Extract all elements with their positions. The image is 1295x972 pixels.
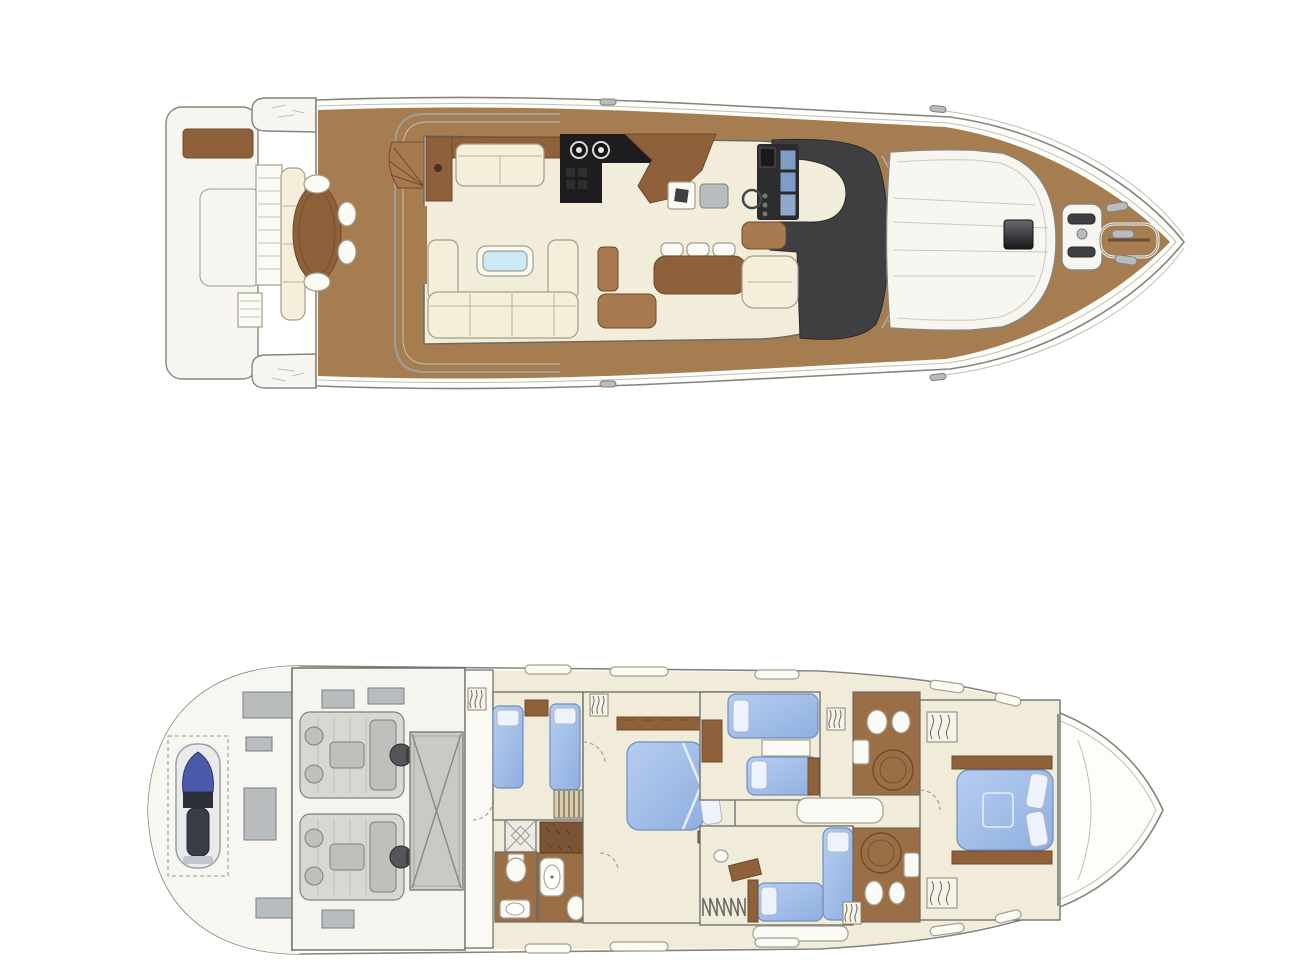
- dash-knob: [763, 203, 768, 208]
- guest-pillow: [733, 700, 749, 732]
- master-bed: [627, 742, 703, 830]
- dinette-chair: [713, 243, 735, 256]
- bow-cleat-dark: [1068, 247, 1095, 257]
- anchor-track: [1100, 224, 1158, 257]
- vip-wardrobe: [927, 712, 957, 742]
- vip-cabin: [920, 700, 1060, 920]
- engine-room-box: [322, 690, 354, 708]
- swim-platform: [166, 107, 262, 379]
- tender-garage: [148, 666, 305, 954]
- passerelle: [238, 293, 262, 327]
- dinette-bench-aft: [598, 294, 656, 328]
- guest-cabin-aft: [700, 826, 853, 941]
- coffee-table: [477, 246, 533, 276]
- fuel-tank: [410, 732, 463, 890]
- toilet: [567, 896, 585, 920]
- jet-ski: [176, 744, 220, 868]
- starboard-engine: [300, 814, 416, 900]
- corridor-sideboard: [797, 798, 883, 823]
- vip-wardrobe: [927, 878, 957, 908]
- guest-side-cabinet: [808, 758, 819, 795]
- master-wardrobe: [540, 822, 583, 853]
- sink: [506, 903, 524, 915]
- salon-door-opening: [420, 206, 427, 284]
- lower-corridor: [465, 670, 493, 948]
- salon-sofa-forward: [456, 144, 544, 186]
- stern-sponson-port: [252, 98, 316, 132]
- stern-sponson-starboard: [252, 354, 316, 388]
- galley-sink: [668, 182, 695, 209]
- engine-room-box: [368, 688, 404, 704]
- master-wardrobe-icon: [590, 694, 608, 716]
- round-shower: [861, 833, 901, 873]
- wardrobe-icon: [843, 902, 861, 924]
- nav-screen: [780, 194, 796, 216]
- guest-cabin-forward: [700, 692, 820, 800]
- dinette-chair: [661, 243, 683, 256]
- guest-nightstand: [702, 720, 722, 762]
- nav-screen: [780, 150, 796, 170]
- port-engine: [300, 712, 416, 798]
- dash-knob: [763, 194, 768, 199]
- lower-deck-plan: [148, 665, 1163, 954]
- bow-cleat-dark: [1068, 214, 1095, 224]
- nav-screen: [780, 172, 796, 192]
- guest-pillow: [751, 761, 767, 789]
- foredeck-sunpad: [887, 150, 1057, 331]
- port-head: [495, 852, 537, 922]
- vanity: [853, 740, 869, 764]
- windlass-capstan: [1077, 229, 1087, 239]
- starboard-head-aft: [843, 828, 920, 924]
- twin-bed-pillow: [554, 708, 576, 724]
- bidet: [889, 882, 905, 904]
- vanity: [904, 853, 919, 877]
- toilet: [506, 858, 526, 882]
- dinette-table: [654, 256, 746, 294]
- companionway-stairs: [554, 790, 586, 818]
- engine-room-box: [322, 910, 354, 928]
- dash-knob: [763, 212, 768, 217]
- guest-shelf: [762, 740, 810, 756]
- toilet: [865, 881, 883, 905]
- wardrobe-icon: [827, 708, 845, 730]
- dinette-bench-side: [598, 247, 618, 291]
- garage-vent: [244, 788, 276, 840]
- toilet: [867, 710, 887, 734]
- cockpit-table: [293, 185, 341, 281]
- twin-nightstand: [525, 700, 548, 716]
- guest-cabinet: [748, 880, 758, 922]
- platform-wood-step: [183, 129, 253, 158]
- vip-frame-top: [952, 756, 1052, 769]
- twin-bed-pillow: [497, 710, 519, 726]
- guest-pillow: [827, 832, 849, 852]
- floorplan-svg: [0, 0, 1295, 972]
- flybridge-stairs: [389, 142, 426, 188]
- transom-boarding-steps: [256, 165, 282, 285]
- galley-appliance: [700, 184, 728, 208]
- round-shower: [873, 750, 913, 790]
- cabin-steps-zigzag: [703, 898, 745, 916]
- vip-frame-bottom: [952, 851, 1052, 864]
- helm-seat: [742, 222, 786, 249]
- dinette-chair: [687, 243, 709, 256]
- dash-display: [760, 148, 775, 167]
- guest-stool: [714, 850, 728, 862]
- corridor-wardrobe-icon: [468, 688, 486, 710]
- main-deck-plan: [166, 97, 1184, 388]
- bidet: [892, 711, 910, 733]
- engine-room: [292, 668, 465, 950]
- port-shower: [505, 820, 536, 852]
- guest-pillow: [761, 887, 777, 915]
- foredeck-hatch: [1004, 220, 1033, 249]
- yacht-floorplan-canvas: [0, 0, 1295, 972]
